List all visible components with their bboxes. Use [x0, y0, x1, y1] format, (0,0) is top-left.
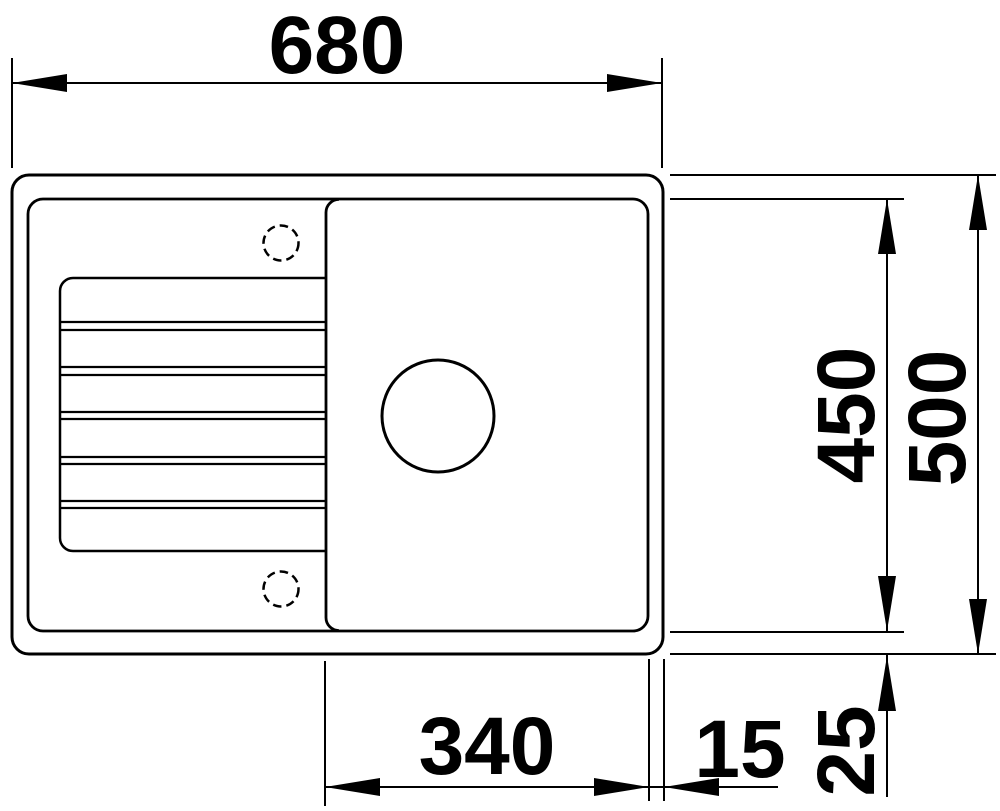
drain-hole [382, 360, 494, 472]
drainboard-outline [60, 278, 326, 551]
dim-inner-depth-label: 450 [801, 347, 892, 484]
arrowhead-left [12, 74, 67, 92]
sink-outer-outline [12, 175, 663, 654]
arrowhead-right [607, 74, 662, 92]
tap-hole-bottom [264, 572, 299, 607]
dim-overall-depth-label: 500 [892, 350, 983, 487]
dimension-rim-offset: 25 [801, 654, 896, 797]
dimension-overall-width: 680 [12, 0, 662, 168]
arrowhead-down [969, 599, 987, 654]
sink-inner-rim [28, 199, 648, 631]
arrowhead-up [878, 656, 896, 711]
bowl-outline [326, 199, 339, 630]
drainboard-ribs [60, 322, 326, 508]
dimension-bowl-width: 340 15 [325, 659, 786, 806]
sink-dimension-drawing: 680 450 500 25 [0, 0, 1000, 811]
dim-overall-width-label: 680 [269, 0, 406, 91]
tap-hole-top [264, 226, 299, 261]
arrowhead-up [969, 175, 987, 230]
arrowhead-right [594, 778, 649, 796]
dim-rim-offset-label: 25 [801, 705, 892, 796]
arrowhead-left [325, 778, 380, 796]
arrowhead-down [878, 576, 896, 631]
dimension-inner-depth: 450 [670, 199, 904, 632]
dim-bowl-width-label: 340 [419, 701, 556, 792]
technical-drawing-canvas: 680 450 500 25 [0, 0, 1000, 811]
arrowhead-up [878, 199, 896, 254]
dim-bowl-to-edge-label: 15 [694, 704, 785, 795]
